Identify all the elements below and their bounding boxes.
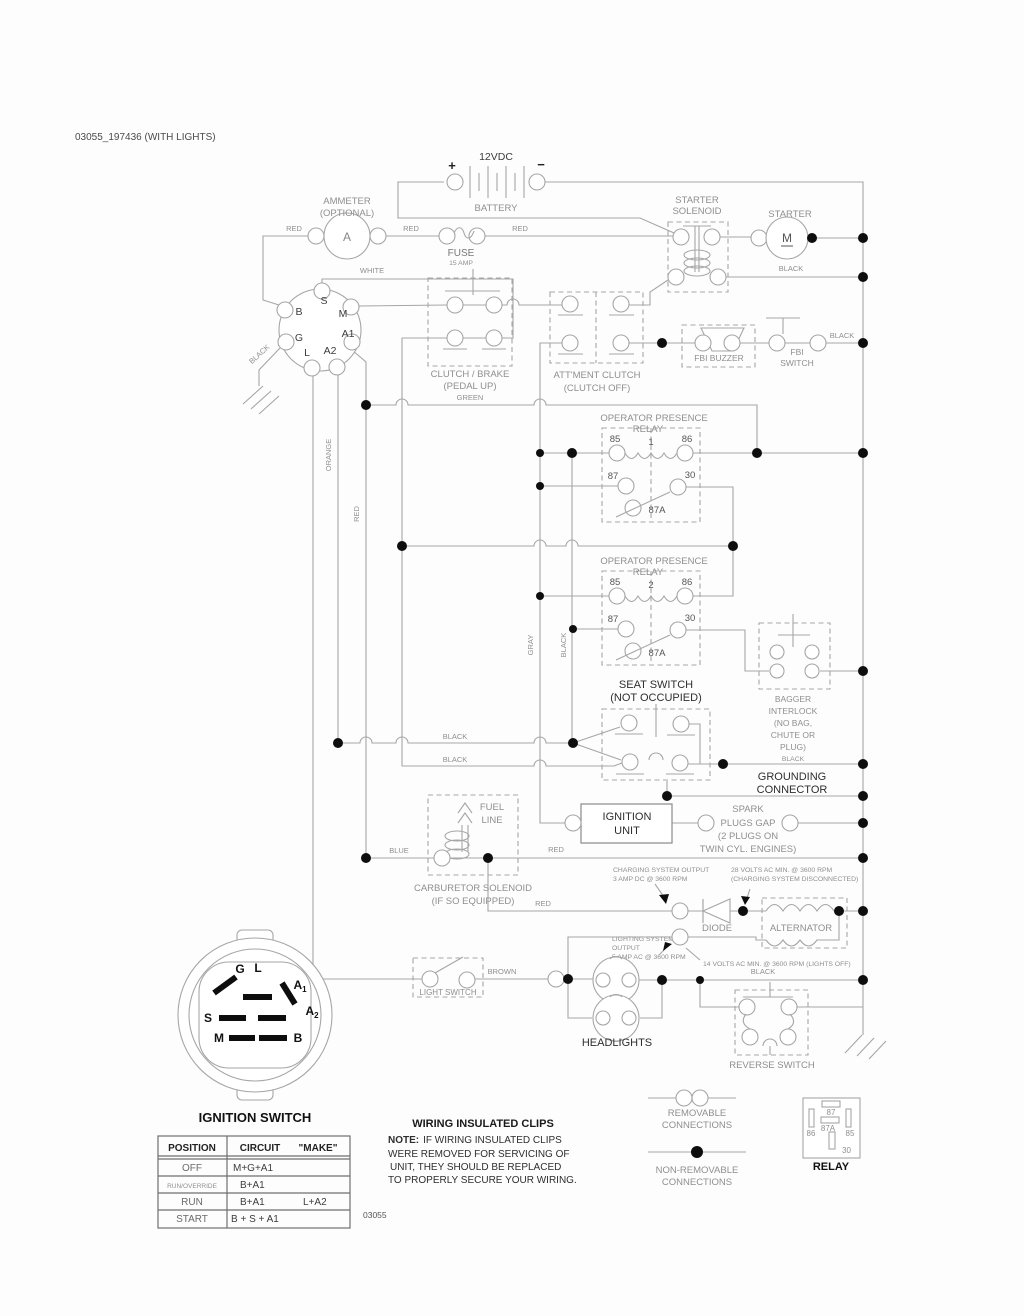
- relay1-number: 1: [648, 437, 653, 448]
- wire-red-5: RED: [535, 899, 551, 908]
- grounding-label-1: GROUNDING: [758, 771, 826, 783]
- wire-red-2: RED: [403, 224, 419, 233]
- big-switch-l: L: [254, 961, 261, 975]
- operator-presence-relay-1: OPERATOR PRESENCE RELAY 1 85 86 87 30 87…: [600, 413, 707, 522]
- wire-gray: GRAY: [526, 635, 535, 656]
- wire-green: GREEN: [457, 393, 484, 402]
- clips-title: WIRING INSULATED CLIPS: [412, 1118, 554, 1130]
- charging-volts-label-2: (CHARGING SYSTEM DISCONNECTED): [731, 876, 858, 883]
- table-row-off-circuit: M+G+A1: [233, 1163, 273, 1174]
- starter-symbol: M: [782, 231, 792, 245]
- table-row-off: OFF: [182, 1163, 202, 1174]
- relay-legend-title: RELAY: [813, 1161, 850, 1173]
- fuse: FUSE 15 AMP: [439, 228, 485, 267]
- charging-volts-arrow-icon: [741, 896, 750, 905]
- non-removable-label-2: CONNECTIONS: [662, 1177, 732, 1188]
- removable-label-2: CONNECTIONS: [662, 1120, 732, 1131]
- carburetor-solenoid: FUEL LINE CARBURETOR SOLENOID (IF SO EQU…: [414, 795, 532, 907]
- battery-minus-sign: −: [537, 157, 545, 172]
- ammeter: A AMMETER (OPTIONAL): [308, 196, 386, 259]
- diode-icon: [703, 899, 730, 923]
- clips-note-line-1: NOTE:IF WIRING INSULATED CLIPS: [388, 1135, 562, 1146]
- bagger-black-wire-label: BLACK: [782, 756, 805, 763]
- relay2-pin-87a: 87A: [649, 648, 667, 659]
- relay-legend-pin-87a: 87A: [821, 1124, 836, 1133]
- relay-legend-pin-30: 30: [842, 1146, 851, 1155]
- starter-motor: M STARTER: [751, 209, 812, 259]
- ignition-switch-title: IGNITION SWITCH: [199, 1110, 312, 1125]
- fbi-buzzer: FBI BUZZER: [682, 325, 755, 367]
- clips-note-line-4: TO PROPERLY SECURE YOUR WIRING.: [388, 1175, 577, 1186]
- charging-arrow-icon: [659, 894, 669, 904]
- terminal-s: S: [320, 295, 327, 307]
- battery-negative-terminal: [529, 174, 545, 190]
- battery-positive-terminal: [447, 174, 463, 190]
- relay2-subtitle: RELAY: [633, 567, 664, 578]
- alternator-label: ALTERNATOR: [770, 923, 832, 934]
- relay1-pin-87: 87: [608, 471, 619, 482]
- charging-output-label-2: 3 AMP DC @ 3600 RPM: [613, 876, 688, 883]
- battery: + − 12VDC BATTERY: [447, 151, 545, 214]
- relay-legend-pin-87: 87: [827, 1108, 836, 1117]
- grounding-label-2: CONNECTOR: [757, 784, 828, 796]
- table-row-start: START: [176, 1214, 208, 1225]
- fuel-flow-arrow-icon: [458, 803, 472, 852]
- table-row-run: RUN: [181, 1197, 203, 1208]
- headlights: HEADLIGHTS: [548, 957, 652, 1049]
- clips-note-line-3: UNIT, THEY SHOULD BE REPLACED: [390, 1162, 561, 1173]
- big-switch-s: S: [204, 1011, 212, 1025]
- terminal-a2: A2: [324, 345, 337, 357]
- seat-switch-label-1: SEAT SWITCH: [619, 679, 693, 691]
- table-row-run-make: L+A2: [303, 1197, 327, 1208]
- solenoid-label-1: STARTER: [675, 195, 719, 206]
- ignition-unit: IGNITION UNIT: [565, 804, 672, 843]
- relay2-pin-30: 30: [685, 613, 696, 624]
- removable-label-1: REMOVABLE: [668, 1108, 726, 1119]
- clips-note-line-2: WERE REMOVED FOR SERVICING OF: [388, 1149, 570, 1160]
- bagger-label-5: PLUG): [780, 742, 806, 752]
- doc-code: 03055: [363, 1210, 387, 1220]
- wire-black-1: BLACK: [779, 264, 804, 273]
- operator-presence-relay-2: OPERATOR PRESENCE RELAY 2 85 86 87 30 87…: [600, 556, 707, 665]
- attachment-clutch-switch: ATT'MENT CLUTCH (CLUTCH OFF): [550, 292, 643, 394]
- relay2-title: OPERATOR PRESENCE: [600, 556, 707, 567]
- relay2-pin-87: 87: [608, 614, 619, 625]
- relay1-pin-30: 30: [685, 470, 696, 481]
- spark-label-4: TWIN CYL. ENGINES): [700, 844, 797, 855]
- wire-black-6: BLACK: [247, 343, 271, 366]
- reverse-switch: REVERSE SWITCH: [729, 982, 815, 1071]
- terminal-g: G: [295, 332, 303, 344]
- ammeter-symbol: A: [343, 230, 351, 244]
- terminal-m: M: [339, 308, 348, 320]
- battery-voltage: 12VDC: [479, 151, 513, 163]
- wire-blue: BLUE: [389, 846, 409, 855]
- table-header-make: "MAKE": [299, 1143, 338, 1154]
- switch-arm-icon: [435, 957, 463, 973]
- clutch-brake-label-2: (PEDAL UP): [444, 381, 497, 392]
- headlights-label: HEADLIGHTS: [582, 1037, 652, 1049]
- ammeter-label-2: (OPTIONAL): [320, 208, 374, 219]
- table-row-start-circuit: B + S + A1: [231, 1214, 279, 1225]
- relay1-pin-85: 85: [610, 434, 621, 445]
- fbi-switch: FBI SWITCH: [769, 335, 826, 368]
- terminal-l: L: [304, 347, 310, 359]
- relay2-pin-85: 85: [610, 577, 621, 588]
- wire-black-vertical: BLACK: [559, 633, 568, 658]
- clutch-brake-switch: CLUTCH / BRAKE (PEDAL UP): [428, 269, 512, 392]
- lighting-output-label-2: OUTPUT: [612, 945, 640, 952]
- battery-cells-icon: [470, 166, 524, 198]
- bagger-label-4: CHUTE OR: [771, 730, 815, 740]
- bagger-label-3: (NO BAG,: [774, 718, 812, 728]
- relay2-number: 2: [648, 580, 653, 591]
- light-switch: LIGHT SWITCH: [413, 957, 483, 997]
- schematic-canvas: 03055_197436 (WITH LIGHTS): [0, 0, 1024, 1316]
- battery-plus-sign: +: [448, 158, 456, 173]
- key-switch-terminals: S B M G A1 L A2: [277, 283, 361, 376]
- relay-legend: 87 86 87A 85 30 RELAY: [803, 1098, 860, 1173]
- spark-label-2: PLUGS GAP: [721, 818, 776, 829]
- spark-label-3: (2 PLUGS ON: [718, 831, 778, 842]
- ignition-unit-label-2: UNIT: [614, 825, 640, 837]
- wire-red-4: RED: [548, 845, 564, 854]
- carb-solenoid-label-2: (IF SO EQUIPPED): [432, 896, 515, 907]
- wire-red-3: RED: [512, 224, 528, 233]
- light-switch-label: LIGHT SWITCH: [419, 988, 476, 997]
- diode-label: DIODE: [702, 923, 732, 934]
- non-removable-label-1: NON-REMOVABLE: [656, 1165, 739, 1176]
- fbi-switch-label-2: SWITCH: [780, 358, 814, 368]
- charging-volts-label-1: 28 VOLTS AC MIN. @ 3600 RPM: [731, 867, 833, 874]
- fbi-switch-label-1: FBI: [790, 347, 803, 357]
- table-row-run-circuit: B+A1: [240, 1197, 265, 1208]
- relay1-pin-87a: 87A: [649, 505, 667, 516]
- terminal-b: B: [295, 306, 302, 318]
- fuel-label-2: LINE: [481, 815, 502, 826]
- ignition-switch-connector: G L A1 A2 S M B IGNITION SWITCH: [178, 930, 332, 1125]
- bagger-interlock: BAGGER INTERLOCK (NO BAG, CHUTE OR PLUG)…: [759, 614, 830, 763]
- table-row-runoverride: RUN/OVERRIDE: [167, 1183, 218, 1190]
- lighting-system: LIGHTING SYSTEM OUTPUT 5 AMP AC @ 3600 R…: [612, 929, 851, 968]
- big-switch-b: B: [294, 1031, 303, 1045]
- bagger-label-1: BAGGER: [775, 694, 811, 704]
- bagger-label-2: INTERLOCK: [769, 706, 818, 716]
- solenoid-label-2: SOLENOID: [672, 206, 721, 217]
- table-header-circuit: CIRCUIT: [240, 1143, 281, 1154]
- relay1-subtitle: RELAY: [633, 424, 664, 435]
- big-switch-m: M: [214, 1031, 224, 1045]
- lighting-output-label-1: LIGHTING SYSTEM: [612, 936, 674, 943]
- removable-connection-icon: [676, 1090, 692, 1106]
- fuse-label: FUSE: [448, 248, 475, 259]
- ignition-unit-label-1: IGNITION: [603, 811, 652, 823]
- clutch-brake-label-1: CLUTCH / BRAKE: [431, 369, 510, 380]
- ammeter-label-1: AMMETER: [323, 196, 371, 207]
- terminal-a1: A1: [342, 328, 355, 340]
- wire-red-vertical: RED: [352, 506, 361, 522]
- reverse-switch-label: REVERSE SWITCH: [729, 1060, 815, 1071]
- relay1-title: OPERATOR PRESENCE: [600, 413, 707, 424]
- wire-white: WHITE: [360, 266, 384, 275]
- relay-legend-pin-85: 85: [846, 1129, 855, 1138]
- wire-red-1: RED: [286, 224, 302, 233]
- table-row-runoverride-circuit: B+A1: [240, 1180, 265, 1191]
- grounding-connector: GROUNDING CONNECTOR: [757, 771, 828, 796]
- wire-black-4: BLACK: [443, 755, 468, 764]
- charging-output-label-1: CHARGING SYSTEM OUTPUT: [613, 867, 709, 874]
- fuse-rating: 15 AMP: [449, 260, 473, 267]
- attment-clutch-label-1: ATT'MENT CLUTCH: [554, 370, 641, 381]
- connections-legend: REMOVABLE CONNECTIONS NON-REMOVABLE CONN…: [648, 1090, 746, 1188]
- wire-black-5: BLACK: [751, 967, 776, 976]
- fbi-buzzer-label: FBI BUZZER: [694, 353, 744, 363]
- wire-black-2: BLACK: [830, 331, 855, 340]
- wiring-diagram-page: 03055_197436 (WITH LIGHTS): [0, 0, 1024, 1316]
- page-title: 03055_197436 (WITH LIGHTS): [75, 132, 216, 143]
- seat-switch-label-2: (NOT OCCUPIED): [610, 692, 701, 704]
- wire-orange: ORANGE: [324, 439, 333, 472]
- fuel-label-1: FUEL: [480, 802, 504, 813]
- wire-black-3: BLACK: [443, 732, 468, 741]
- spark-plugs: SPARK PLUGS GAP (2 PLUGS ON TWIN CYL. EN…: [698, 804, 798, 855]
- carb-solenoid-label-1: CARBURETOR SOLENOID: [414, 883, 532, 894]
- relay2-pin-86: 86: [682, 577, 693, 588]
- relay1-pin-86: 86: [682, 434, 693, 445]
- lighting-arrow-icon: [663, 942, 672, 951]
- lighting-volts-label: 14 VOLTS AC MIN. @ 3600 RPM (LIGHTS OFF): [703, 961, 851, 968]
- starter-label: STARTER: [768, 209, 812, 220]
- spark-label-1: SPARK: [732, 804, 764, 815]
- starter-solenoid: STARTER SOLENOID: [668, 195, 728, 292]
- non-removable-connection-icon: [691, 1146, 703, 1158]
- battery-label: BATTERY: [475, 203, 519, 214]
- relay-legend-pin-86: 86: [807, 1129, 816, 1138]
- ignition-switch-table: POSITION CIRCUIT "MAKE" OFF M+G+A1 RUN/O…: [158, 1136, 350, 1228]
- table-header-position: POSITION: [168, 1143, 216, 1154]
- big-switch-g: G: [235, 962, 244, 976]
- wiring-clips-note: WIRING INSULATED CLIPS NOTE:IF WIRING IN…: [388, 1118, 577, 1186]
- attment-clutch-label-2: (CLUTCH OFF): [564, 383, 631, 394]
- wire-brown: BROWN: [488, 967, 517, 976]
